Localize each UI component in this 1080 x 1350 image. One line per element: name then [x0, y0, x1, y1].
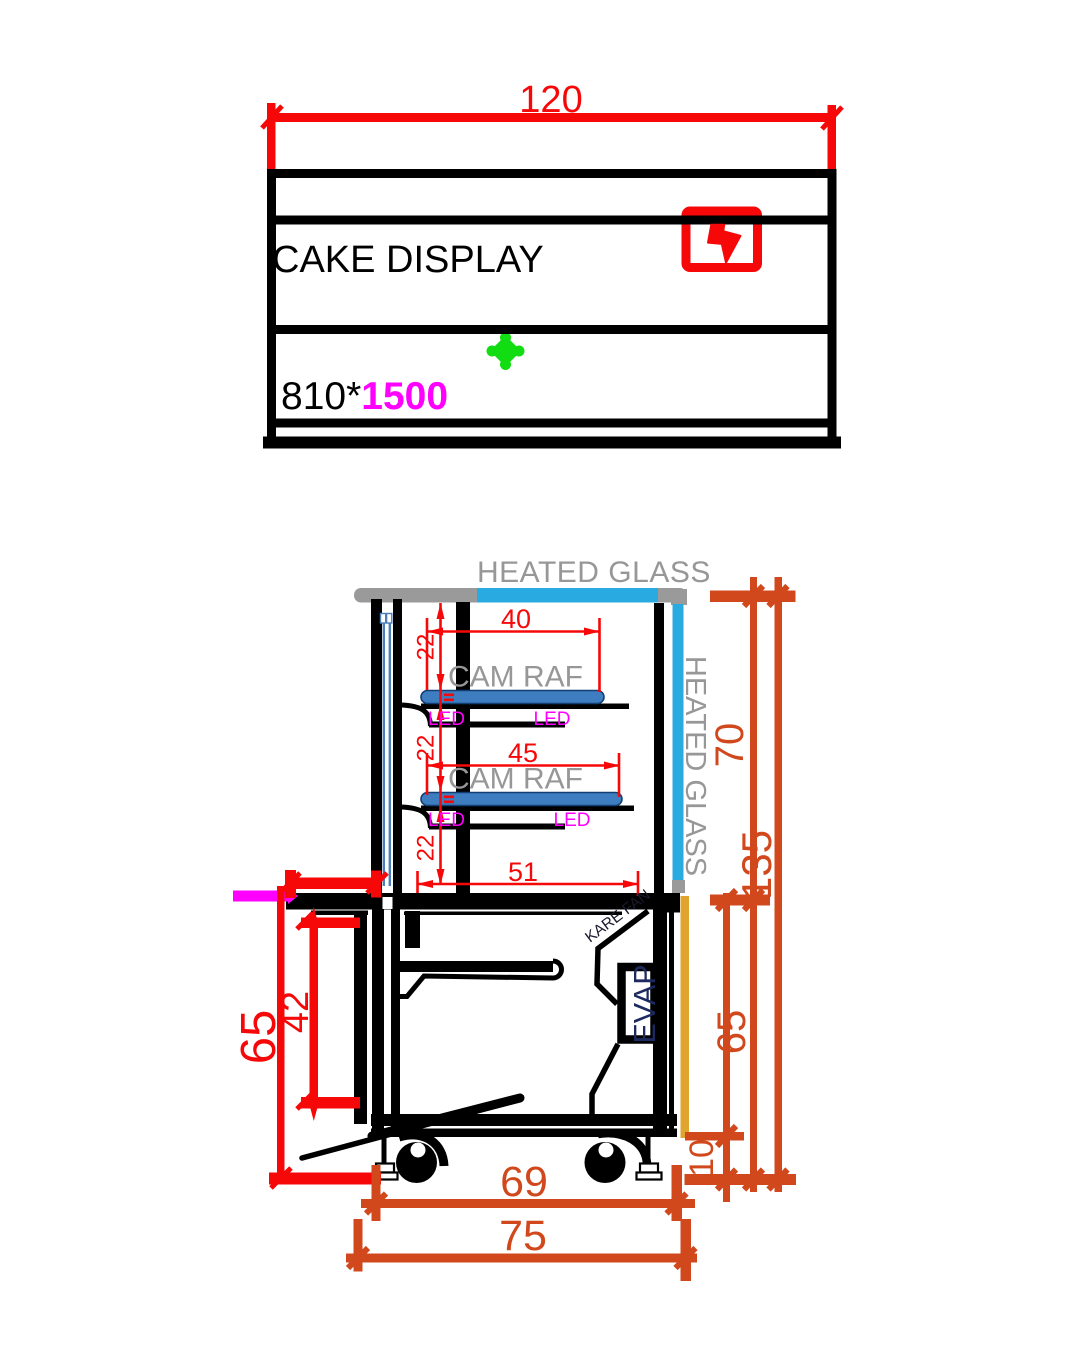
- svg-text:22: 22: [413, 835, 440, 862]
- svg-text:LED: LED: [534, 709, 571, 730]
- svg-text:22: 22: [413, 634, 440, 661]
- svg-text:LED: LED: [554, 810, 591, 831]
- svg-text:EVAP: EVAP: [628, 964, 662, 1043]
- svg-text:HEATED GLASS: HEATED GLASS: [477, 556, 711, 589]
- svg-text:CAKE DISPLAY: CAKE DISPLAY: [272, 239, 544, 281]
- svg-text:10: 10: [683, 1139, 721, 1177]
- svg-text:75: 75: [499, 1212, 547, 1260]
- svg-text:69: 69: [500, 1158, 548, 1206]
- svg-text:CAM RAF: CAM RAF: [448, 661, 583, 694]
- svg-text:120: 120: [519, 79, 582, 121]
- svg-text:LED: LED: [428, 810, 465, 831]
- svg-text:45: 45: [508, 738, 538, 768]
- svg-text:HEATED GLASS: HEATED GLASS: [679, 656, 711, 876]
- svg-text:42: 42: [275, 991, 317, 1033]
- svg-text:65: 65: [710, 1010, 754, 1055]
- svg-text:51: 51: [508, 857, 538, 887]
- svg-text:70: 70: [708, 723, 752, 768]
- svg-text:810*1500: 810*1500: [281, 375, 448, 418]
- svg-text:135: 135: [733, 830, 780, 900]
- svg-text:LED: LED: [428, 709, 465, 730]
- svg-text:40: 40: [501, 604, 531, 634]
